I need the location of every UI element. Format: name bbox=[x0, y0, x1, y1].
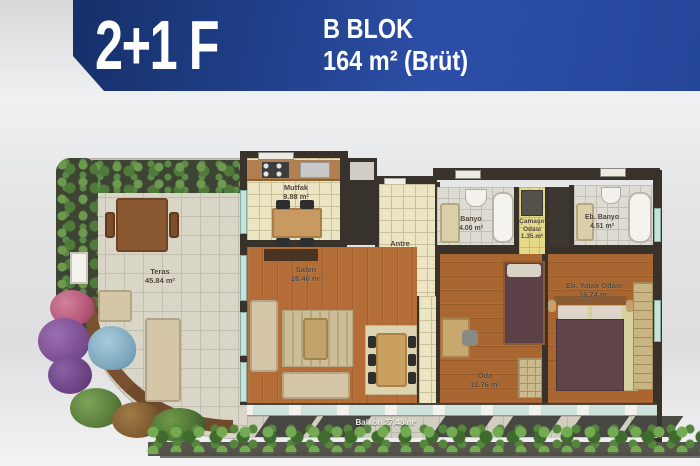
eb-pillow-2 bbox=[592, 306, 622, 319]
window-left-3 bbox=[240, 312, 247, 356]
terrace-sofa bbox=[145, 318, 181, 402]
corridor-floor bbox=[419, 296, 436, 404]
balcony-window-row bbox=[247, 403, 657, 416]
oda-chair bbox=[462, 330, 478, 346]
eb-yatak-label: Eb. Yatak Odası 16.74 m² bbox=[548, 282, 640, 299]
mutfak-label: Mutfak 9.88 m² bbox=[261, 184, 331, 201]
terrace-bench-left bbox=[105, 212, 115, 238]
banyo-toilet-icon bbox=[465, 189, 487, 207]
ground-line bbox=[160, 452, 700, 458]
eb-banyo-label: Eb. Banyo 4.51 m² bbox=[572, 214, 632, 231]
header-right: B BLOK 164 m² (Brüt) bbox=[323, 13, 468, 77]
banyo-bathtub-icon bbox=[492, 192, 514, 243]
eb-nightstand-left bbox=[548, 300, 556, 312]
eb-pillow-1 bbox=[558, 306, 588, 319]
window-top-banyo bbox=[455, 170, 481, 179]
salon-sofa-left bbox=[250, 300, 278, 372]
terrace-planter bbox=[70, 252, 88, 284]
window-left-1 bbox=[240, 190, 247, 234]
window-top-kitchen bbox=[258, 152, 294, 160]
dining-chair-1 bbox=[368, 336, 376, 348]
dining-chair-6 bbox=[408, 372, 416, 384]
block-label: B BLOK bbox=[323, 13, 468, 45]
dining-table bbox=[376, 333, 407, 387]
gross-area-label: 164 m² (Brüt) bbox=[323, 45, 468, 77]
dining-chair-5 bbox=[408, 354, 416, 366]
dining-chair-3 bbox=[368, 372, 376, 384]
header-banner: 2+1 F B BLOK 164 m² (Brüt) bbox=[0, 0, 700, 95]
oda-label: Oda 12.76 m² bbox=[453, 372, 517, 389]
salon-label: Salon 26.46 m² bbox=[271, 266, 341, 283]
window-right-1 bbox=[654, 208, 661, 242]
kitchen-chair-1 bbox=[276, 200, 290, 209]
teras-label: Teras 45.84 m² bbox=[120, 268, 200, 285]
kitchen-chair-3 bbox=[276, 238, 290, 247]
front-hedge bbox=[146, 424, 700, 454]
kitchen-chair-2 bbox=[300, 200, 314, 209]
window-left-4 bbox=[240, 362, 247, 402]
terrace-bench-right bbox=[169, 212, 179, 238]
kitchen-chair-4 bbox=[300, 238, 314, 247]
tv-unit bbox=[264, 249, 318, 261]
terrace-armchair bbox=[98, 290, 132, 322]
unit-type-label: 2+1 F bbox=[95, 1, 218, 89]
floor-plan: Teras 45.84 m² Mutfak 9.88 m² bbox=[0, 120, 700, 466]
sink-icon bbox=[300, 162, 330, 178]
banyo-label: Banyo 4.00 m² bbox=[449, 216, 493, 233]
pond bbox=[88, 326, 136, 370]
closet-front-panel bbox=[350, 162, 374, 180]
dining-chair-2 bbox=[368, 354, 376, 366]
camasir-label: Çamaşır Odası 1.35 m² bbox=[514, 218, 550, 241]
eb-banyo-toilet-icon bbox=[601, 187, 621, 204]
oda-pillow bbox=[507, 264, 541, 277]
stove-icon bbox=[262, 162, 289, 178]
shaft-block bbox=[549, 187, 569, 247]
wall-right bbox=[653, 170, 662, 405]
window-left-2 bbox=[240, 255, 247, 301]
kitchen-table bbox=[272, 208, 322, 238]
eb-bed-blanket bbox=[556, 319, 624, 391]
oda-wardrobe bbox=[518, 358, 542, 398]
terrace-hedge-top bbox=[90, 160, 247, 193]
window-right-2 bbox=[654, 300, 661, 342]
dining-chair-4 bbox=[408, 336, 416, 348]
wall-kitchen-right bbox=[340, 155, 347, 247]
terrace-table bbox=[116, 198, 168, 252]
salon-sofa-bottom bbox=[282, 372, 350, 399]
page-background: 2+1 F B BLOK 164 m² (Brüt) Teras 45.84 m… bbox=[0, 0, 700, 466]
washing-machine-icon bbox=[521, 190, 543, 216]
purple-bush-small bbox=[48, 356, 92, 394]
window-top-eb-banyo bbox=[600, 168, 626, 177]
coffee-table bbox=[303, 318, 328, 360]
